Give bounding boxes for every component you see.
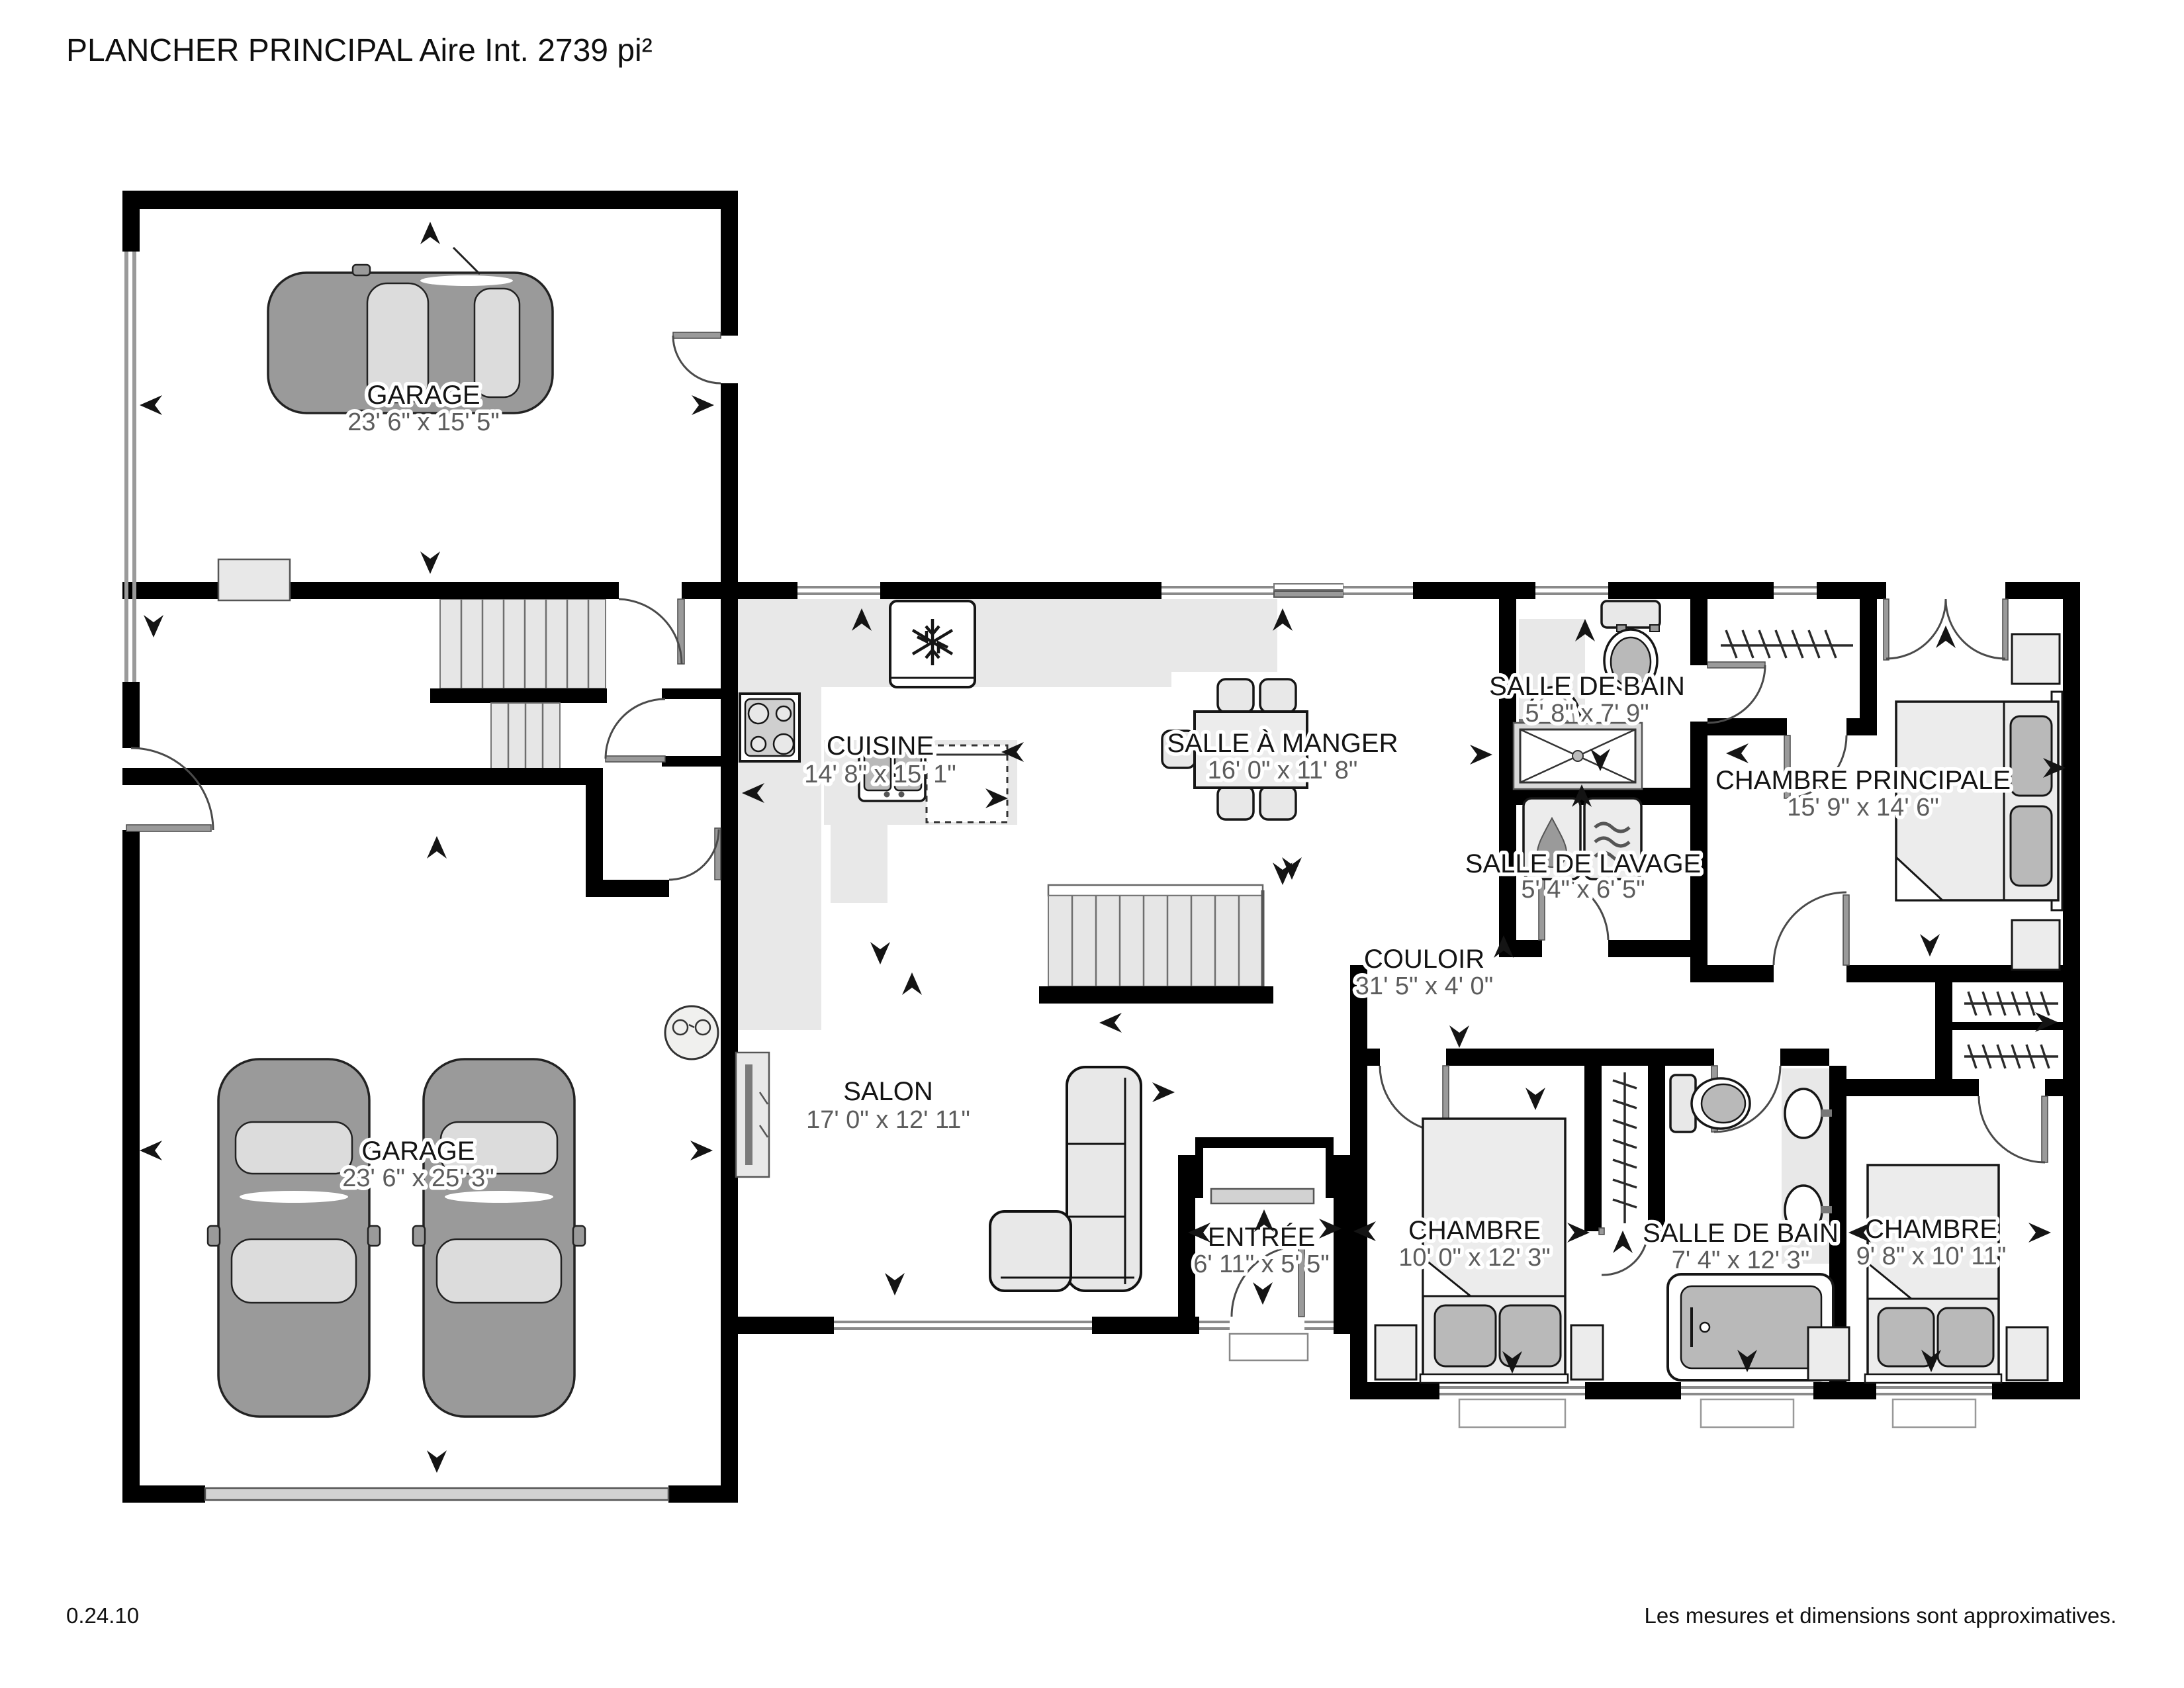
shower-icon (1514, 723, 1642, 789)
room-label: GARAGE (361, 1137, 475, 1166)
door-swing (673, 332, 721, 383)
direction-arrow-icon (1099, 1013, 1122, 1033)
direction-arrow-icon (885, 1273, 905, 1295)
room-chambre-principale: CHAMBRE PRINCIPALE 15' 9" x 14' 6" (1715, 630, 2062, 970)
room-garage-main: GARAGE 23' 6" x 25' 3" (208, 1006, 718, 1417)
room-dims: 23' 6" x 25' 3" (342, 1164, 494, 1192)
direction-arrow-icon (427, 1450, 447, 1473)
direction-arrow-icon (2028, 1223, 2051, 1243)
stove-icon (740, 694, 799, 761)
door-swing (669, 828, 721, 880)
direction-arrow-icon (144, 615, 163, 637)
room-dims: 10' 0" x 12' 3" (1398, 1244, 1551, 1272)
direction-arrow-icon (427, 836, 447, 859)
room-dims: 23' 6" x 15' 5" (347, 408, 500, 436)
room-dims: 14' 8" x 15' 1" (804, 761, 956, 788)
nightstand-icon (2012, 634, 2060, 684)
garage-door (205, 1488, 668, 1500)
fridge-icon (890, 601, 975, 687)
room-garage-top: GARAGE 23' 6" x 15' 5" (218, 248, 553, 600)
sliding-door (1274, 582, 1343, 599)
room-label: CUISINE (827, 731, 934, 761)
closet-door (1211, 1189, 1314, 1203)
direction-arrow-icon (902, 972, 922, 995)
door-swing (126, 748, 213, 831)
window (1199, 1317, 1230, 1334)
room-salle-a-manger: SALLE À MANGER 16' 0" x 11' 8" (1162, 679, 1398, 820)
window (834, 1317, 1092, 1334)
car-icon (413, 1059, 585, 1417)
room-dims: 17' 0" x 12' 11" (806, 1106, 970, 1134)
room-dims: 5' 8" x 7' 9" (1525, 700, 1649, 727)
room-dims: 31' 5" x 4' 0" (1355, 972, 1493, 1000)
room-label: SALLE À MANGER (1167, 728, 1398, 758)
direction-arrow-icon (1253, 1282, 1273, 1305)
room-dims: 15' 9" x 14' 6" (1787, 794, 1939, 821)
door-swing (606, 699, 665, 762)
floor-plan-page: PLANCHER PRINCIPAL Aire Int. 2739 pi² 0.… (0, 0, 2184, 1688)
entry-step (1230, 1334, 1308, 1360)
door-swing (619, 599, 684, 664)
water-heater-icon (665, 1006, 718, 1059)
room-label: GARAGE (367, 381, 480, 410)
window (1876, 1382, 1992, 1427)
direction-arrow-icon (1152, 1082, 1175, 1102)
window (1343, 582, 1413, 599)
direction-arrow-icon (692, 395, 714, 415)
window (1439, 1382, 1585, 1427)
window (1304, 1317, 1334, 1334)
nightstand-icon (1571, 1325, 1603, 1380)
room-dims: 9' 8" x 10' 11" (1856, 1243, 2007, 1270)
room-salon: SALON 17' 0" x 12' 11" (736, 1053, 1141, 1291)
nightstand-icon (1808, 1327, 1849, 1380)
closet-rod-icon (1613, 1072, 1637, 1223)
window (1161, 582, 1274, 599)
stairs-icon (430, 599, 607, 782)
window (797, 582, 880, 599)
room-label: CHAMBRE PRINCIPALE (1715, 766, 2011, 795)
garage-door (126, 252, 134, 682)
floor-plan-drawing: PLANCHER PRINCIPAL Aire Int. 2739 pi² 0.… (0, 0, 2184, 1688)
toilet-icon (1670, 1075, 1750, 1132)
direction-arrow-icon (1920, 934, 1940, 957)
fireplace-icon (736, 1053, 769, 1177)
direction-arrow-icon (1726, 743, 1749, 763)
sofa-icon (990, 1067, 1141, 1291)
room-dims: 7' 4" x 12' 3" (1672, 1246, 1809, 1274)
direction-arrow-icon (870, 942, 890, 964)
basement-stairs-icon (1039, 885, 1273, 1004)
direction-arrow-icon (140, 395, 162, 415)
direction-arrow-icon (1613, 1231, 1633, 1253)
door-swing (1707, 662, 1765, 723)
room-label: SALLE DE LAVAGE (1465, 849, 1701, 878)
bed-icon (1865, 1165, 2001, 1383)
nightstand-icon (2007, 1327, 2048, 1380)
direction-arrow-icon (1525, 1088, 1545, 1110)
car-icon (208, 1059, 380, 1417)
direction-arrow-icon (420, 551, 440, 574)
window (1774, 582, 1817, 599)
room-label: CHAMBRE (1865, 1215, 1997, 1244)
direction-arrow-icon (690, 1141, 713, 1160)
direction-arrow-icon (420, 222, 440, 244)
nightstand-icon (1375, 1325, 1416, 1380)
room-label: SALLE DE BAIN (1489, 672, 1685, 701)
room-label: SALLE DE BAIN (1643, 1219, 1839, 1248)
window (1681, 1382, 1813, 1427)
page-title: PLANCHER PRINCIPAL Aire Int. 2739 pi² (66, 33, 653, 68)
nightstand-icon (2012, 920, 2060, 970)
room-label: SALON (843, 1077, 933, 1106)
window (1535, 582, 1608, 599)
direction-arrow-icon (140, 1141, 162, 1160)
room-label: COULOIR (1364, 945, 1484, 974)
room-label: CHAMBRE (1408, 1216, 1541, 1245)
closet-rod-icon (1721, 630, 1853, 658)
version-label: 0.24.10 (66, 1603, 139, 1628)
room-dims: 5' 4" x 6' 5" (1521, 876, 1645, 904)
room-dims: 6' 11" x 5' 5" (1193, 1250, 1330, 1278)
direction-arrow-icon (1449, 1025, 1469, 1048)
garage-step (218, 559, 290, 600)
room-dims: 16' 0" x 11' 8" (1208, 757, 1358, 784)
disclaimer-label: Les mesures et dimensions sont approxima… (1645, 1603, 2117, 1628)
direction-arrow-icon (1470, 745, 1492, 765)
door-swing (1774, 892, 1849, 965)
door-swing (1979, 1096, 2048, 1162)
